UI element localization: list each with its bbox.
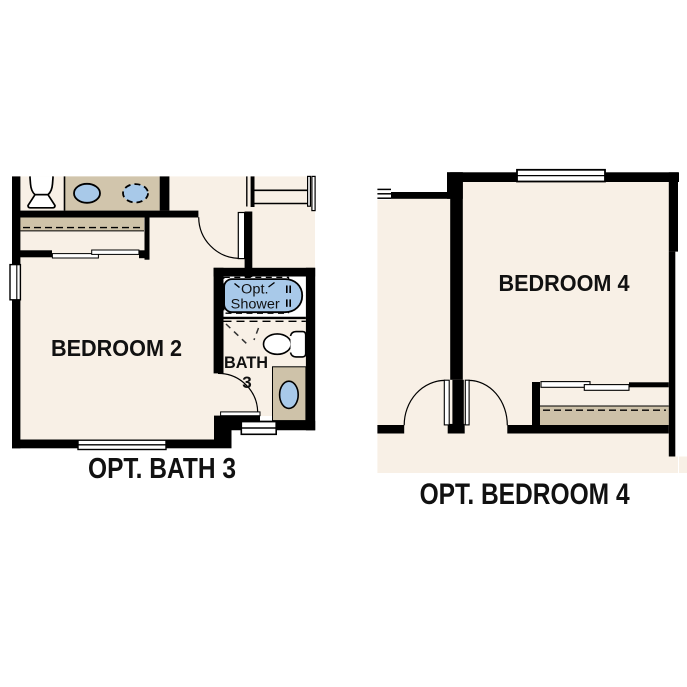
svg-text:OPT. BATH 3: OPT. BATH 3 xyxy=(88,453,236,485)
svg-text:OPT. BEDROOM 4: OPT. BEDROOM 4 xyxy=(420,478,630,511)
svg-text:BEDROOM 4: BEDROOM 4 xyxy=(499,270,630,296)
svg-text:BEDROOM 2: BEDROOM 2 xyxy=(51,335,182,361)
svg-text:BATH: BATH xyxy=(224,353,268,372)
svg-text:3: 3 xyxy=(242,373,251,392)
svg-text:Opt.: Opt. xyxy=(241,281,269,296)
svg-text:Shower: Shower xyxy=(231,296,281,311)
